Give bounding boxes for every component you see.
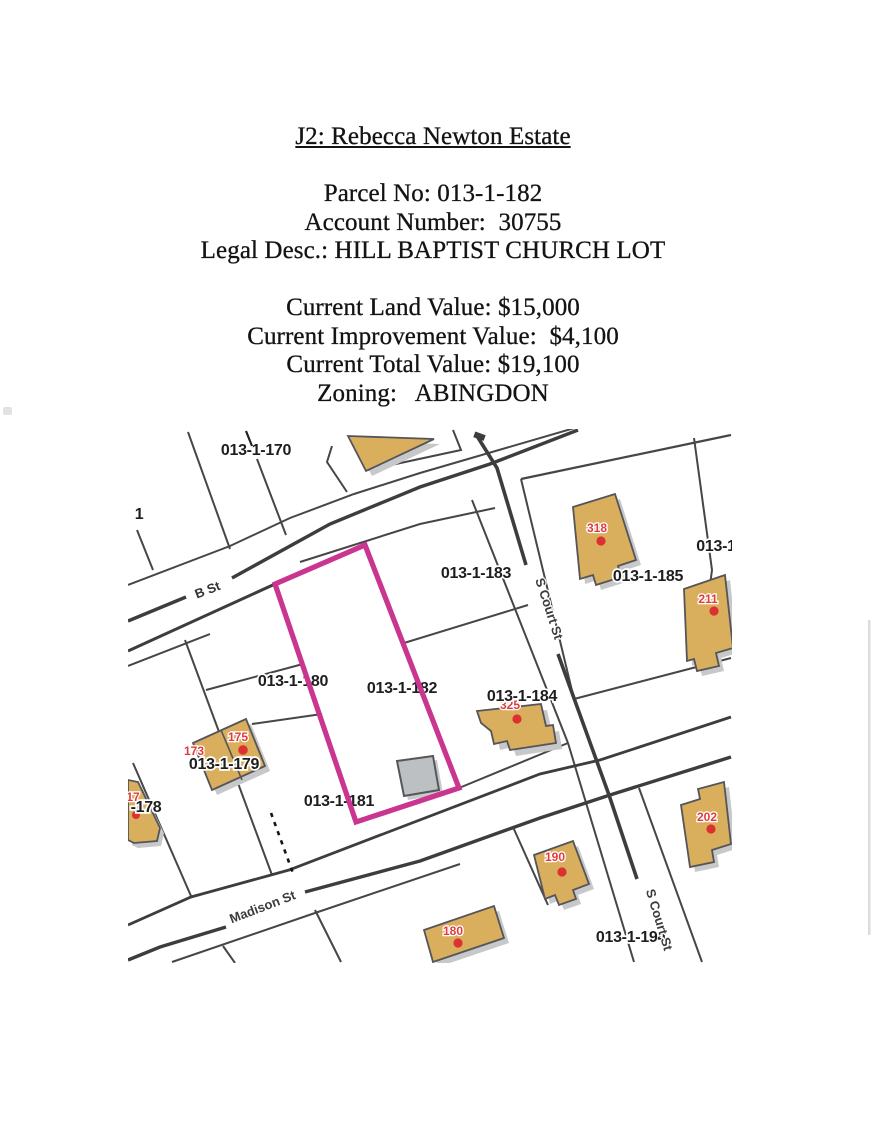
svg-text:013-1-180: 013-1-180 (258, 673, 329, 690)
svg-text:013-1-185: 013-1-185 (613, 568, 684, 585)
svg-text:013-1-170: 013-1-170 (221, 442, 292, 459)
svg-text:175: 175 (228, 730, 248, 744)
svg-text:318: 318 (587, 521, 607, 535)
svg-text:B St: B St (193, 578, 223, 602)
svg-text:013-1: 013-1 (696, 538, 736, 555)
svg-text:202: 202 (697, 810, 717, 824)
svg-text:190: 190 (545, 850, 565, 864)
svg-text:180: 180 (443, 924, 463, 938)
svg-text:211: 211 (698, 592, 718, 606)
svg-text:1: 1 (135, 506, 144, 523)
svg-text:S Court St: S Court St (532, 576, 566, 642)
svg-text:013-1-179: 013-1-179 (189, 756, 260, 773)
svg-text:013-1-183: 013-1-183 (441, 565, 512, 582)
svg-text:013-1-181: 013-1-181 (304, 793, 375, 810)
svg-text:013-1-184: 013-1-184 (487, 688, 558, 705)
svg-text:Madison St: Madison St (227, 887, 298, 926)
svg-text:-178: -178 (131, 799, 162, 816)
svg-text:013-1-182: 013-1-182 (367, 680, 438, 697)
